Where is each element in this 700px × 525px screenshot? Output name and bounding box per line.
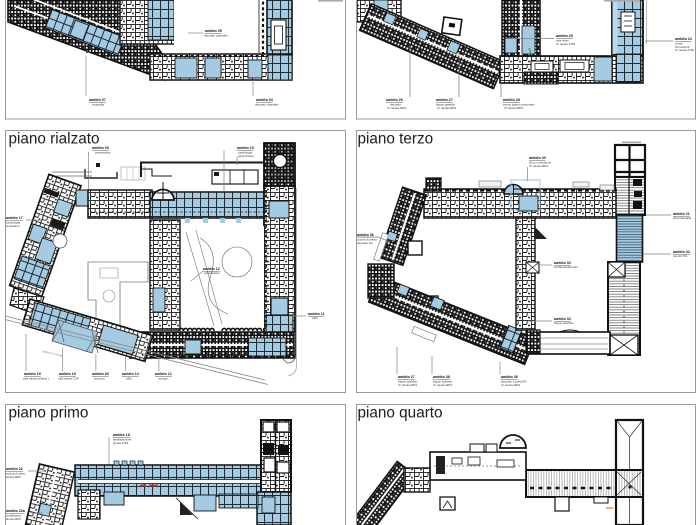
- svg-text:ambito 83: ambito 83: [92, 372, 109, 376]
- svg-text:ambito 25: ambito 25: [556, 34, 573, 38]
- svg-text:potenziatoio: potenziatoio: [238, 154, 254, 158]
- svg-text:piano quarto: piano quarto: [358, 405, 443, 422]
- svg-text:potenziatoio: potenziatoio: [204, 271, 220, 275]
- svg-text:deposito atti: deposito atti: [357, 241, 373, 245]
- svg-text:piano terzo: piano terzo: [358, 131, 434, 148]
- svg-text:ambulatori: ambulatori: [6, 224, 20, 228]
- svg-text:sala attesa CUP: sala attesa CUP: [58, 377, 79, 381]
- svg-text:potenziatoio: potenziatoio: [95, 151, 111, 155]
- svg-text:piano primo: piano primo: [9, 405, 89, 422]
- svg-text:deposito ospedale: deposito ospedale: [204, 34, 228, 38]
- svg-text:rif. tavola ARIS: rif. tavola ARIS: [529, 164, 548, 168]
- svg-text:ambito 36: ambito 36: [357, 233, 374, 237]
- svg-text:ambito 22: ambito 22: [6, 467, 23, 471]
- svg-text:sala attesa prelievi +: sala attesa prelievi +: [23, 377, 50, 381]
- svg-text:ambito 27: ambito 27: [398, 375, 415, 379]
- svg-text:deposito ospedale: deposito ospedale: [255, 103, 279, 107]
- svg-text:chemioterapia: chemioterapia: [673, 216, 692, 220]
- svg-text:morgue: morgue: [158, 377, 168, 381]
- svg-text:ambito 18: ambito 18: [113, 433, 130, 437]
- svg-text:piano rialzato: piano rialzato: [9, 131, 100, 148]
- svg-text:rif. tavola ARIS: rif. tavola ARIS: [437, 106, 456, 110]
- svg-text:uffici: uffici: [126, 377, 132, 381]
- svg-text:ambito 22a: ambito 22a: [6, 509, 26, 513]
- svg-text:nuova UTA: nuova UTA: [673, 254, 687, 258]
- svg-text:ambito 24: ambito 24: [675, 37, 692, 41]
- svg-text:ambito 38: ambito 38: [433, 375, 450, 379]
- svg-text:ambito 05: ambito 05: [205, 29, 222, 33]
- svg-text:ambito 09: ambito 09: [92, 146, 109, 150]
- svg-text:ambito 19: ambito 19: [59, 372, 76, 376]
- svg-text:accesso: accesso: [94, 377, 105, 381]
- svg-text:tavola ARIS: tavola ARIS: [6, 517, 21, 521]
- svg-text:ambito 26: ambito 26: [386, 98, 403, 102]
- svg-text:ambito 39: ambito 39: [501, 375, 518, 379]
- svg-text:uffici: uffici: [312, 316, 318, 320]
- svg-text:ambito 14: ambito 14: [122, 372, 139, 376]
- svg-text:tavola ARIS: tavola ARIS: [6, 475, 21, 479]
- svg-text:rif. tavola ARIS: rif. tavola ARIS: [501, 383, 520, 387]
- svg-text:rif. tavola ARIS: rif. tavola ARIS: [398, 383, 417, 387]
- svg-text:rif. tavola 4769: rif. tavola 4769: [556, 42, 575, 46]
- svg-text:ambito 27: ambito 27: [436, 98, 453, 102]
- svg-text:ambito 19: ambito 19: [24, 372, 41, 376]
- svg-text:bagno assistito: bagno assistito: [554, 321, 574, 325]
- svg-text:curtatone/deposito: curtatone/deposito: [554, 265, 578, 269]
- svg-text:ecografia: ecografia: [92, 103, 104, 107]
- svg-text:rif. tavola ARIS: rif. tavola ARIS: [433, 383, 452, 387]
- svg-text:ambito 30: ambito 30: [529, 156, 546, 160]
- svg-text:tavola 4769: tavola 4769: [113, 441, 128, 445]
- svg-text:ambito 17: ambito 17: [6, 216, 23, 220]
- svg-text:ambito 07: ambito 07: [89, 98, 106, 102]
- svg-text:rif. tavola 4769: rif. tavola 4769: [675, 48, 694, 52]
- svg-text:ambito 04: ambito 04: [256, 98, 273, 102]
- svg-text:ambito 12: ambito 12: [155, 372, 172, 376]
- svg-text:ambito 28: ambito 28: [503, 98, 520, 102]
- svg-text:rif. tavola ARIS: rif. tavola ARIS: [387, 106, 406, 110]
- svg-text:rif. tavola ARIS: rif. tavola ARIS: [504, 106, 523, 110]
- svg-text:ambito 19: ambito 19: [237, 146, 254, 150]
